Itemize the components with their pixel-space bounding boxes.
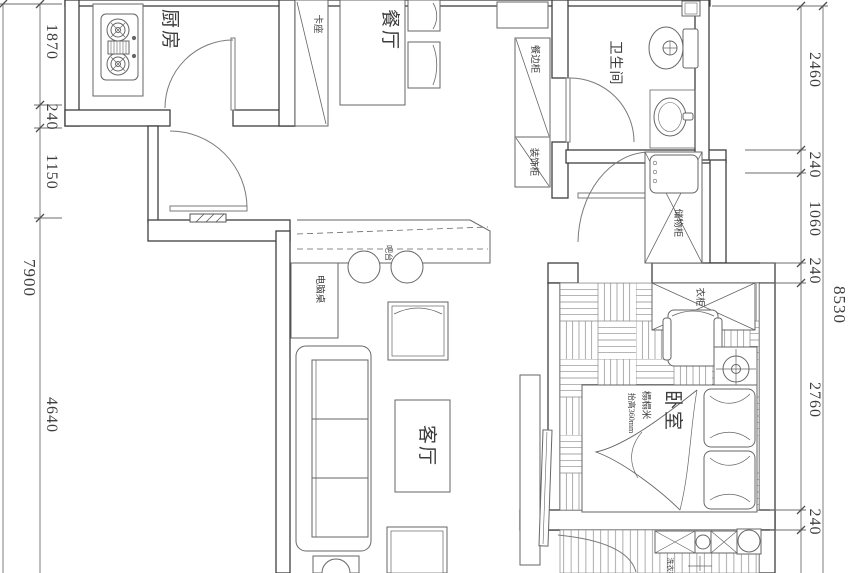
bar-stool xyxy=(348,251,380,283)
wall-bedroom-north-west xyxy=(548,263,578,283)
label-living: 客厅 xyxy=(416,425,438,467)
label-bathroom: 卫生间 xyxy=(607,41,623,86)
label-dining: 餐厅 xyxy=(379,9,401,51)
wall-hall-west xyxy=(148,126,158,222)
pillow xyxy=(704,451,755,509)
wall-bedroom-north-east xyxy=(652,263,775,283)
dining-chair xyxy=(408,42,440,88)
dim-right-0: 2460 xyxy=(806,52,823,88)
dim-left-2: 1150 xyxy=(43,154,60,189)
pillow xyxy=(704,389,755,447)
nightstand xyxy=(714,347,757,390)
wall-kitchen-left xyxy=(65,0,79,126)
bar-stool xyxy=(391,251,423,283)
dim-right-4: 2760 xyxy=(806,382,823,418)
washing-machine xyxy=(737,529,761,554)
dim-left-0: 1870 xyxy=(43,24,60,60)
label-tatami: 榻榻米 xyxy=(640,391,652,420)
floor-plan: 厨房 餐厅 卫生间 客厅 卧室 卡座 餐边柜 装饰柜 储物柜 衣柜 吧台 电脑桌… xyxy=(0,0,860,573)
dining-furniture xyxy=(295,0,550,187)
fridge-box xyxy=(497,2,548,28)
label-storage-cabinet: 储物柜 xyxy=(672,209,684,238)
label-bedroom: 卧室 xyxy=(662,390,684,432)
dim-left-3: 4640 xyxy=(43,397,60,433)
wall-bath-east xyxy=(695,0,709,160)
dim-right-1: 240 xyxy=(806,152,823,179)
label-tatami-note: 抬高360mm xyxy=(627,393,637,434)
label-bar: 吧台 xyxy=(384,245,394,261)
wall-kitchen-bottom-left xyxy=(65,110,170,126)
wall-bath-west-upper xyxy=(552,0,568,78)
wall-bedroom-south xyxy=(520,510,775,530)
entry-door xyxy=(170,131,247,222)
dim-left-outer: 7900 xyxy=(20,259,39,297)
bathroom-sink xyxy=(654,98,693,136)
wall-right-mid xyxy=(710,160,726,263)
dim-right-outer: 8530 xyxy=(830,286,849,324)
label-kitchen: 厨房 xyxy=(159,9,181,51)
label-booth: 卡座 xyxy=(312,14,324,34)
living-furniture xyxy=(291,220,552,573)
side-stool xyxy=(313,556,359,573)
label-washer: 洗衣机 xyxy=(666,558,675,573)
storage-cabinet xyxy=(645,152,702,263)
sofa xyxy=(296,346,371,551)
balcony-sink xyxy=(695,531,711,553)
dining-chair xyxy=(408,0,440,31)
bathroom-fixtures xyxy=(649,1,700,148)
armchair xyxy=(388,302,448,360)
wall-living-west xyxy=(276,231,290,573)
dim-right-2: 1060 xyxy=(806,201,823,237)
dim-right-5: 240 xyxy=(806,509,823,536)
label-computer-desk: 电脑桌 xyxy=(314,275,326,304)
armchair xyxy=(387,527,447,573)
label-decor-cabinet: 装饰柜 xyxy=(528,148,540,177)
hall-door xyxy=(578,152,650,242)
bathroom-door xyxy=(566,78,634,142)
wall-entry-south xyxy=(148,220,290,241)
tv-console xyxy=(520,375,540,565)
wall-kitchen-dining-divider xyxy=(279,0,295,126)
dim-left-1: 240 xyxy=(43,104,60,131)
toilet xyxy=(649,27,698,69)
balcony-cabinet xyxy=(655,531,695,553)
label-sideboard: 餐边柜 xyxy=(529,45,541,74)
floor-plan-canvas: 厨房 餐厅 卫生间 客厅 卧室 卡座 餐边柜 装饰柜 储物柜 衣柜 吧台 电脑桌… xyxy=(0,0,860,573)
kitchen-fixtures xyxy=(93,4,143,96)
balcony-cabinet xyxy=(711,531,737,553)
wall-bedroom-east xyxy=(759,283,775,530)
desk-chair xyxy=(663,310,722,366)
dim-right-3: 240 xyxy=(806,258,823,285)
storage-appliance xyxy=(650,155,698,193)
label-wardrobe: 衣柜 xyxy=(694,287,706,307)
